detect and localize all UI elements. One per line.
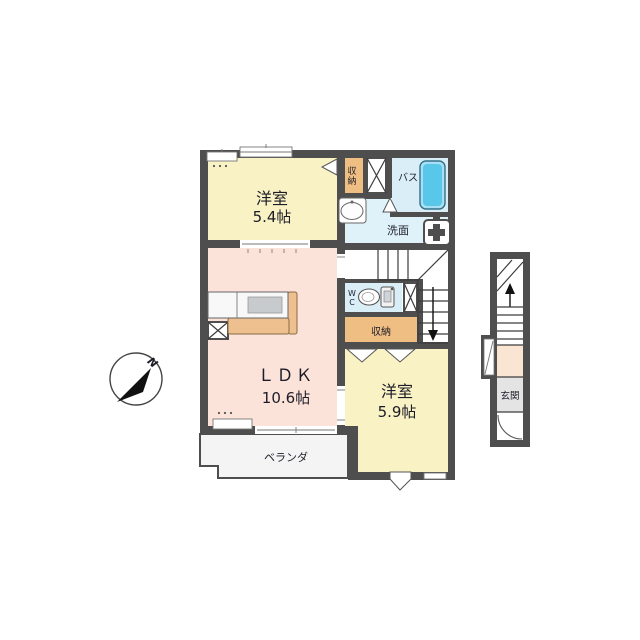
kitchen-sink [248, 297, 282, 313]
label-closet-top-2: 納 [347, 175, 356, 187]
stairs-down-arrow [428, 330, 438, 341]
label-closet-top-1: 収 [347, 165, 356, 177]
sink-icon [339, 198, 366, 223]
floor-plan-image: N 洋室 5.4帖 収 納 バス 洗面 W C 収納 ＬＤＫ 10.6帖 洋室 … [0, 0, 640, 640]
label-bedroom-top-size: 5.4帖 [253, 208, 292, 226]
window-bedroom-bottom [424, 473, 446, 479]
washing-machine-icon [424, 217, 450, 245]
window-ldk-bottom [213, 419, 252, 429]
label-bath: バス [398, 172, 418, 184]
label-bedroom-top-name: 洋室 [256, 189, 288, 208]
label-entrance: 玄関 [500, 390, 519, 402]
label-closet-mid: 収納 [371, 325, 391, 338]
label-veranda: ベランダ [264, 450, 308, 464]
label-bedroom-bottom-name: 洋室 [381, 382, 413, 401]
label-wc-1: W [348, 289, 356, 298]
floor-plan-svg: N 洋室 5.4帖 収 納 バス 洗面 W C 収納 ＬＤＫ 10.6帖 洋室 … [0, 0, 640, 640]
window-top-small [207, 152, 237, 161]
bathtub-icon [420, 161, 445, 209]
label-ldk-name: ＬＤＫ [258, 366, 315, 386]
entrance-hall-floor [497, 345, 523, 377]
sliding-door-ldk-bedroom [337, 386, 345, 425]
label-bedroom-bottom-size: 5.9帖 [378, 403, 417, 421]
label-ldk-size: 10.6帖 [262, 389, 310, 407]
door-bedroom-bottom [390, 472, 411, 490]
entrance-block [481, 252, 530, 447]
compass-icon: N [110, 353, 162, 405]
door-opening-hall-ldk [337, 254, 345, 278]
label-wc-2: C [349, 298, 355, 307]
label-washroom: 洗面 [387, 224, 409, 237]
